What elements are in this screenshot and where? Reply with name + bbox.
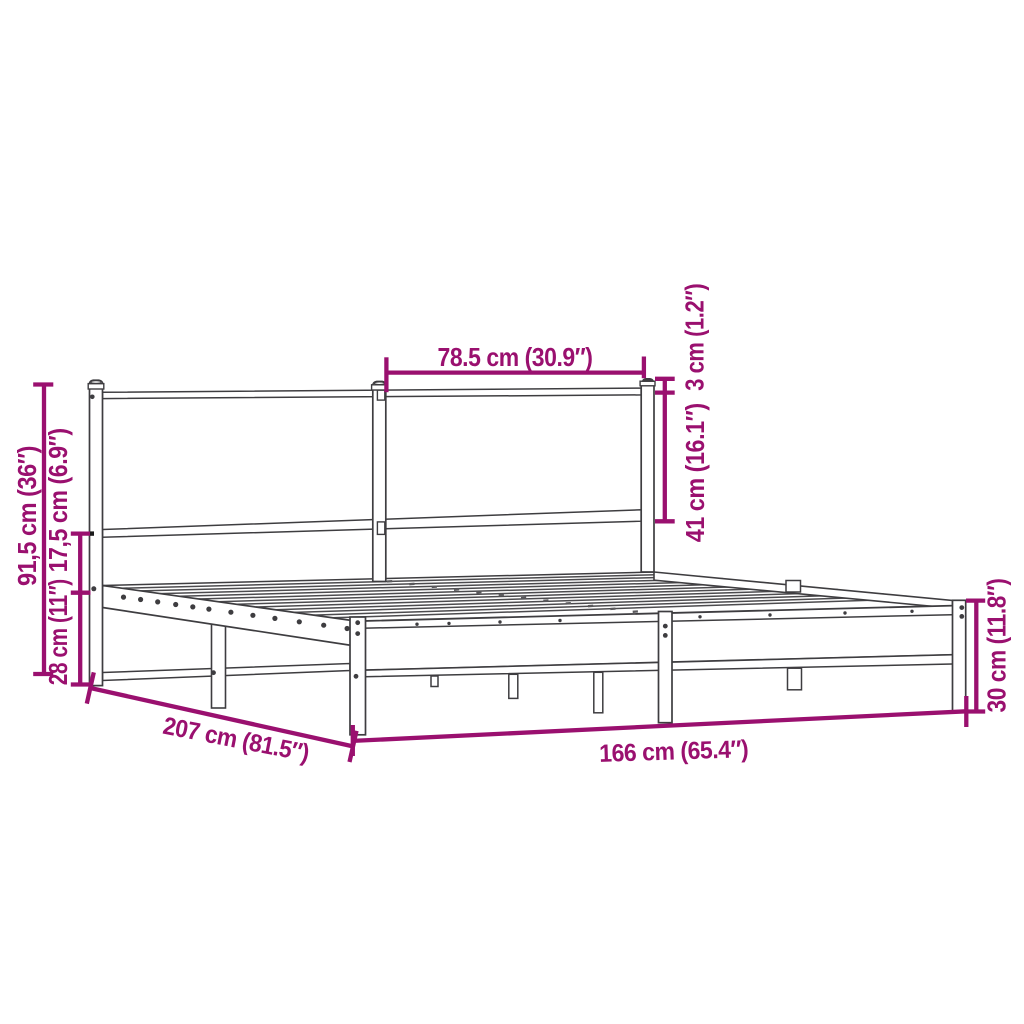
svg-text:3 cm (1.2″): 3 cm (1.2″) bbox=[680, 284, 710, 391]
svg-text:17,5 cm (6.9″): 17,5 cm (6.9″) bbox=[43, 428, 73, 572]
svg-text:30 cm (11.8″): 30 cm (11.8″) bbox=[982, 579, 1012, 713]
svg-text:78.5 cm (30.9″): 78.5 cm (30.9″) bbox=[438, 342, 593, 372]
svg-text:41 cm (16.1″): 41 cm (16.1″) bbox=[680, 403, 710, 542]
svg-text:91,5 cm (36″): 91,5 cm (36″) bbox=[12, 446, 42, 586]
svg-text:28 cm (11″): 28 cm (11″) bbox=[43, 579, 73, 685]
svg-text:166 cm (65.4″): 166 cm (65.4″) bbox=[599, 736, 749, 768]
